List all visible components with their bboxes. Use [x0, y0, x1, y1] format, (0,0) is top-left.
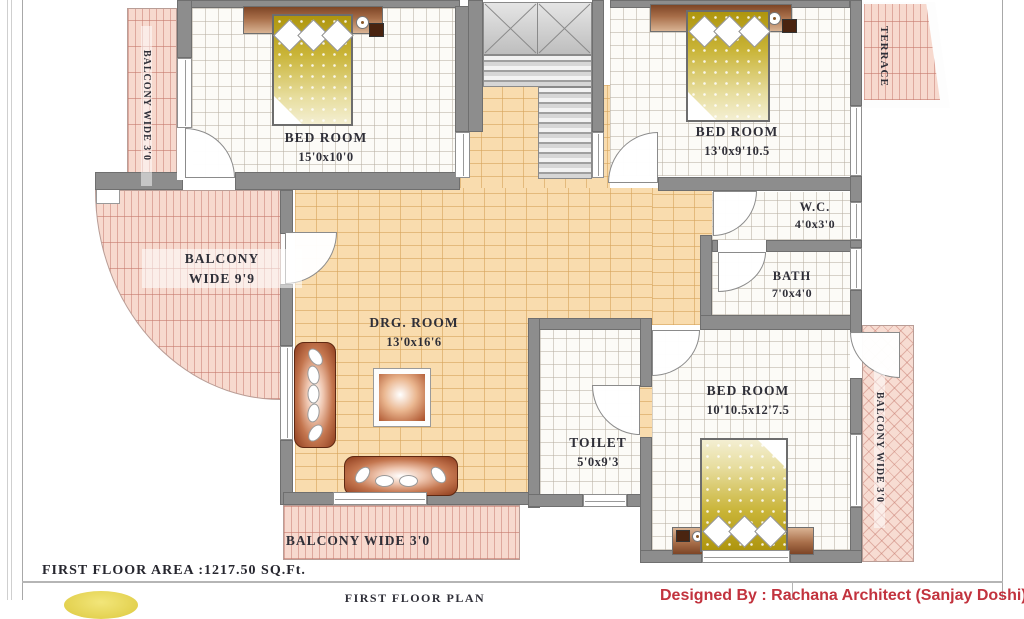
- sofa-cushion: [306, 403, 321, 424]
- wall-toilet-bottom-a: [528, 494, 583, 507]
- balcony-left-strip: [127, 8, 177, 178]
- label-toilet: TOILET 5'0x9'3: [538, 433, 658, 471]
- room-dims: 5'0x9'3: [538, 453, 658, 471]
- sofa-cushion: [352, 464, 373, 486]
- window: [850, 248, 862, 290]
- sofa-bottom-drg: [344, 456, 458, 496]
- window: [702, 550, 790, 563]
- pillow: [754, 515, 787, 548]
- room-name: TOILET: [538, 433, 658, 453]
- wall-right-ext-a: [850, 0, 862, 106]
- balcony-name: BALCONY: [142, 249, 302, 269]
- room-dims: 4'0x3'0: [770, 216, 860, 233]
- bedside-lamp-tl: [356, 16, 369, 29]
- wall-right-ext-d: [850, 290, 862, 334]
- plan-title-text: FIRST FLOOR PLAN: [300, 591, 530, 606]
- room-dims: 10'10.5x12'7.5: [668, 401, 828, 419]
- label-drg-room: DRG. ROOM 13'0x16'6: [334, 313, 494, 351]
- wall-toilet-top: [528, 318, 652, 330]
- wall-right-ext-e: [850, 378, 862, 434]
- balcony-curved: [95, 190, 281, 400]
- blanket-fold: [758, 440, 786, 468]
- label-balcony-bottom: BALCONY WIDE 3'0: [258, 531, 458, 551]
- wall-hall-right: [700, 235, 712, 326]
- page-edge-line-inner: [11, 0, 12, 600]
- blanket-fold: [274, 96, 302, 124]
- wall-right-ext-c: [850, 240, 862, 248]
- wall-toilet-right-a: [640, 318, 652, 387]
- window: [177, 58, 192, 128]
- sofa-cushion: [375, 475, 394, 487]
- sofa-cushion: [399, 475, 418, 487]
- wall-stair-left: [468, 0, 483, 132]
- balcony-dims: WIDE 9'9: [142, 269, 302, 289]
- label-bedroom-tl: BED ROOM 15'0x10'0: [246, 128, 406, 166]
- room-dims: 7'0x4'0: [747, 285, 837, 302]
- room-name: BATH: [747, 267, 837, 285]
- room-name: BED ROOM: [668, 381, 828, 401]
- stair-landing-cross-lines: [483, 2, 592, 55]
- bed-bedroom-tr: [686, 10, 770, 122]
- designer-credit-text: Designed By : Rachana Architect (Sanjay …: [660, 587, 1024, 605]
- sofa-cushion: [305, 422, 326, 444]
- wall-wc-top: [658, 177, 862, 191]
- label-bedroom-br: BED ROOM 10'10.5x12'7.5: [668, 381, 828, 419]
- wall-toilet-left: [528, 318, 540, 508]
- label-bedroom-tr: BED ROOM 13'0x9'10.5: [657, 122, 817, 160]
- label-balcony-left: BALCONY WIDE 3'0: [141, 26, 152, 186]
- stair-treads-lower: [538, 87, 592, 179]
- balcony-name: BALCONY WIDE 3'0: [258, 531, 458, 551]
- label-terrace: TERRACE: [878, 9, 890, 104]
- room-name: W.C.: [770, 198, 860, 216]
- wall-left-exterior-upper: [177, 0, 192, 58]
- sofa-cushion: [305, 346, 326, 368]
- window: [455, 132, 470, 178]
- nightstand-br: [676, 530, 690, 542]
- blanket-fold: [688, 92, 716, 120]
- frame-right-border: [1002, 0, 1003, 600]
- wall-bath-bottom: [700, 315, 862, 330]
- wall-stair-right: [592, 0, 604, 132]
- wall-drg-left-b: [280, 284, 293, 346]
- first-floor-area-text: FIRST FLOOR AREA :1217.50 SQ.Ft.: [42, 563, 306, 579]
- floor-plan-page: { "plan": { "rooms": { "bedroom_tl": {"n…: [0, 0, 1024, 600]
- pillow: [738, 15, 771, 48]
- room-name: BED ROOM: [246, 128, 406, 148]
- nightstand-tl: [369, 23, 384, 37]
- wall-balcony-top-a: [95, 172, 183, 190]
- sofa-left-drg: [294, 342, 336, 448]
- center-table-drg: [374, 369, 430, 426]
- footer-rule: [22, 581, 1003, 583]
- room-name: BED ROOM: [657, 122, 817, 142]
- sofa-cushion: [308, 385, 320, 404]
- bed-bedroom-tl: [272, 14, 353, 126]
- wall-balcony-top-b: [235, 172, 460, 190]
- wall-wc-bath-divider-b: [766, 240, 862, 252]
- room-dims: 15'0x10'0: [246, 148, 406, 166]
- window: [583, 494, 627, 507]
- pillow: [321, 19, 354, 52]
- window: [592, 132, 604, 178]
- wall-drg-bottom-a: [283, 492, 335, 505]
- room-dims: 13'0x9'10.5: [657, 142, 817, 160]
- wall-drg-left-a: [280, 190, 293, 234]
- stair-landing: [483, 2, 592, 55]
- wall-toilet-bottom-b: [627, 494, 641, 507]
- architect-logo: [64, 591, 138, 619]
- sofa-cushion: [306, 365, 321, 386]
- window: [850, 106, 862, 176]
- label-bath: BATH 7'0x4'0: [747, 267, 837, 303]
- label-balcony-curved: BALCONY WIDE 9'9: [142, 249, 302, 288]
- window: [333, 492, 427, 505]
- room-name: DRG. ROOM: [334, 313, 494, 333]
- window: [280, 346, 293, 440]
- bed-bedroom-br: [700, 438, 788, 552]
- label-balcony-right: BALCONY WIDE 3'0: [874, 368, 885, 528]
- stair-treads-upper: [483, 55, 592, 87]
- room-dims: 13'0x16'6: [334, 333, 494, 351]
- label-wc: W.C. 4'0x3'0: [770, 198, 860, 234]
- nightstand-tr: [782, 19, 797, 33]
- page-edge-line-outer: [7, 0, 8, 600]
- wall-wc-bath-divider-a: [712, 240, 718, 252]
- frame-left-border: [22, 0, 23, 600]
- sofa-cushion: [428, 464, 449, 486]
- window: [850, 434, 862, 507]
